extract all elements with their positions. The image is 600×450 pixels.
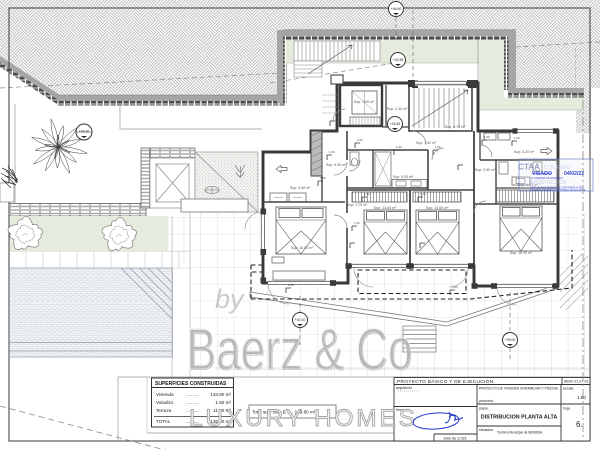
svg-text:04/02/22: 04/02/22 [564, 171, 584, 177]
svg-text:+39.00: +39.00 [505, 338, 516, 342]
svg-text:Sup: 3.60 m²: Sup: 3.60 m² [475, 168, 496, 172]
svg-text:9E09–21.07.01: 9E09–21.07.01 [564, 380, 588, 384]
svg-text:Sup: 16.00 m²: Sup: 16.00 m² [291, 246, 314, 250]
svg-text:Sup: 3.30 m²: Sup: 3.30 m² [387, 107, 408, 111]
svg-text:1:50: 1:50 [577, 395, 586, 400]
svg-text:1.00: 1.00 [435, 145, 441, 149]
svg-text:1.00: 1.00 [396, 145, 402, 149]
svg-text:promotor.: promotor. [479, 399, 494, 403]
svg-text:Sup: 1.75 m²: Sup: 1.75 m² [347, 203, 368, 207]
svg-text:+43.45: +43.45 [390, 122, 401, 126]
svg-text:+46.60: +46.60 [391, 7, 402, 11]
svg-text:arquitecto.: arquitecto. [396, 386, 413, 390]
svg-text:Sup: 5.36 m²: Sup: 5.36 m² [326, 163, 347, 167]
svg-text:Voladizo: Voladizo [156, 400, 174, 405]
svg-text:1.00: 1.00 [320, 176, 326, 180]
svg-text:1.00: 1.00 [514, 136, 520, 140]
svg-text:1.00: 1.00 [354, 221, 360, 225]
svg-text:VISADO: VISADO [532, 171, 552, 177]
svg-text:Sup: 13.60 m²: Sup: 13.60 m² [374, 206, 397, 210]
svg-text:ARQUITECTOS: ARQUITECTOS [530, 180, 567, 186]
svg-text:CTAA: CTAA [518, 162, 540, 172]
svg-text:Sup: 6.75 m²: Sup: 6.75 m² [445, 125, 466, 129]
svg-text:1.00: 1.00 [364, 192, 370, 196]
svg-text:+43.30: +43.30 [79, 130, 90, 134]
svg-text:situación.: situación. [479, 428, 494, 432]
svg-text:plano.: plano. [479, 407, 489, 411]
svg-text:1.00: 1.00 [329, 150, 335, 154]
svg-text:Sup: 1.90 m²: Sup: 1.90 m² [354, 100, 375, 104]
svg-text:COLEGIO: COLEGIO [544, 165, 571, 171]
svg-text:by: by [215, 284, 245, 314]
svg-text:TOTAL: TOTAL [156, 419, 171, 424]
svg-text:Término Municipal de BENISSA.: Término Municipal de BENISSA. [497, 431, 543, 435]
svg-text:1.00: 1.00 [288, 283, 294, 287]
svg-text:..........: .......... [186, 392, 199, 397]
svg-text:Sup: 5.05 m²: Sup: 5.05 m² [393, 175, 414, 179]
svg-text:Sup: 7.52 m²: Sup: 7.52 m² [416, 141, 437, 145]
svg-text:PROYECTO DE VIVIENDA UNIFAM: PROYECTO DE VIVIENDA UNIFAMILIAR Y PISCI… [479, 387, 559, 391]
svg-text:133.80 m²: 133.80 m² [210, 392, 231, 397]
svg-text:1.00: 1.00 [484, 135, 490, 139]
svg-text:Sup: 5.20 m²: Sup: 5.20 m² [514, 150, 535, 154]
svg-text:Sup: 16.00 m²: Sup: 16.00 m² [510, 251, 533, 255]
svg-text:1.00: 1.00 [420, 192, 426, 196]
svg-text:Terraza: Terraza [156, 408, 172, 413]
svg-text:4.00: 4.00 [452, 285, 458, 289]
svg-text:Julio de 2.021: Julio de 2.021 [443, 437, 467, 441]
svg-text:hoja.: hoja. [563, 407, 571, 411]
svg-text:Baerz & Co: Baerz & Co [186, 317, 412, 382]
svg-text:Sup: 13.60 m²: Sup: 13.60 m² [426, 206, 449, 210]
svg-text:1000/2010 COLEGIO TERRITORIAL: 1000/2010 COLEGIO TERRITORIAL DE ALICANT… [530, 189, 586, 192]
svg-text:DISTRIBUCION PLANTA ALTA: DISTRIBUCION PLANTA ALTA [481, 415, 558, 421]
svg-text:6.: 6. [576, 420, 583, 429]
svg-text:1.00: 1.00 [357, 138, 363, 142]
svg-text:escala: escala [563, 387, 573, 391]
svg-text:+43.38: +43.38 [393, 58, 404, 62]
svg-text:Sup: 5.06 m²: Sup: 5.06 m² [290, 186, 311, 190]
svg-text:Vivienda: Vivienda [156, 392, 174, 397]
